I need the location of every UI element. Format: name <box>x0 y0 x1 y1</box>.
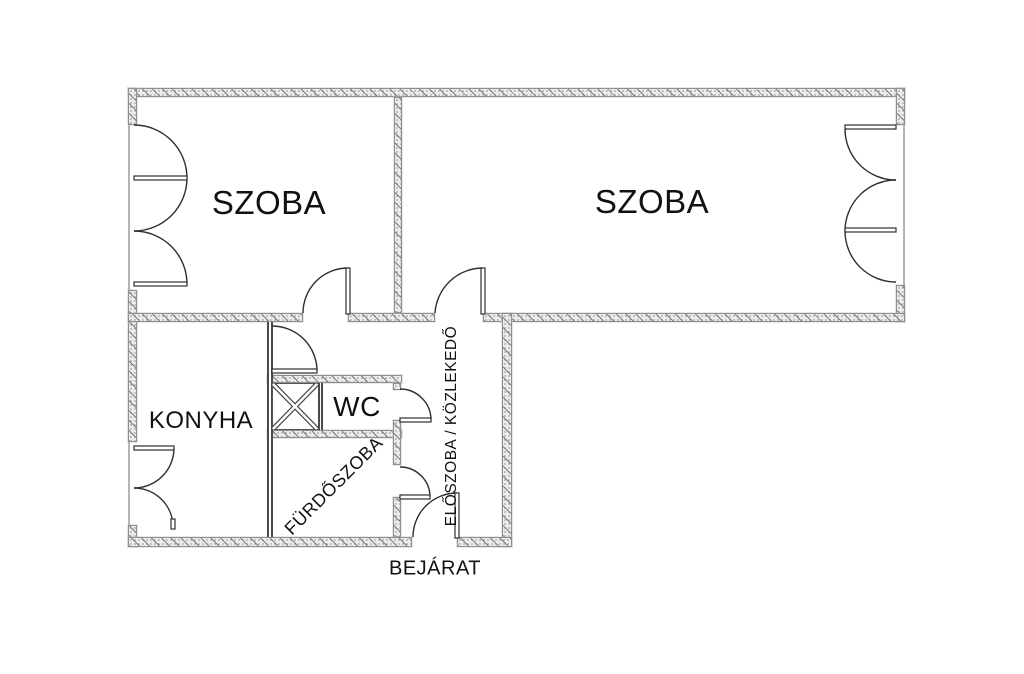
kitchen-window-swing-arc-upper <box>134 448 174 488</box>
right-window-leaf-lower <box>845 228 896 232</box>
kitchen-window-swing-arc-lower <box>134 488 173 527</box>
kitchen-window-leaf-lower <box>171 519 175 529</box>
kitchen-window-leaf-upper <box>134 446 174 450</box>
room-label-szoba-left: SZOBA <box>212 184 326 222</box>
bathroom-door-arc <box>400 467 430 497</box>
wc-door-leaf <box>400 418 431 422</box>
door-window-symbols <box>0 0 1024 674</box>
room-label-eloszoba: ELŐSZOBA / KÖZLEKEDŐ <box>443 326 461 526</box>
right-room-door-arc <box>435 268 483 313</box>
wc-door-arc <box>400 389 431 420</box>
kitchen-door-leaf <box>272 369 317 373</box>
right-window-swing-arc-upper <box>845 129 896 180</box>
room-label-szoba-right: SZOBA <box>595 183 709 221</box>
bathroom-door-leaf <box>400 495 430 499</box>
left-window-swing-arc-lower <box>134 231 187 284</box>
right-window-leaf-upper <box>845 125 896 129</box>
kitchen-door-arc <box>272 326 317 371</box>
entrance-label-bejarat: BEJÁRAT <box>389 558 481 581</box>
left-window-leaf-lower <box>134 282 187 286</box>
floor-plan: SZOBA SZOBA KONYHA WC FÜRDŐSZOBA ELŐSZOB… <box>0 0 1024 674</box>
room-label-konyha: KONYHA <box>149 407 253 435</box>
left-room-door-leaf <box>346 268 350 314</box>
left-window-leaf-upper <box>134 176 187 180</box>
left-room-door-arc <box>303 268 348 313</box>
room-label-wc: WC <box>333 391 381 423</box>
shaft-cross-inner <box>273 384 317 429</box>
right-room-door-leaf <box>481 268 485 314</box>
